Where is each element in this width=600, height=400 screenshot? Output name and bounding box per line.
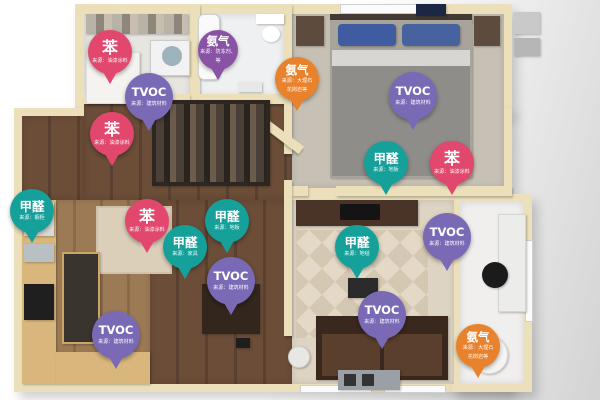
pin-tail [103, 72, 117, 84]
pin-bubble: 苯来源：油漆涂料 [430, 141, 474, 185]
pin-sub: 来源：地板 [373, 167, 399, 173]
pin-tail [109, 357, 123, 369]
pin-tail [350, 267, 364, 279]
pin-tail [224, 303, 238, 315]
pin-layer: 苯来源：油漆涂料氨气来源：防冻剂、等氨气来源：大理石花岗岩等TVOC来源：建筑材… [0, 0, 600, 400]
pin-sub: 来源：橱柜 [19, 215, 45, 221]
pin-bubble: TVOC来源：建筑材料 [92, 311, 140, 359]
pin-tail [445, 183, 459, 195]
pin-bubble: TVOC来源：建筑材料 [423, 213, 471, 261]
pin-label: 甲醛 [344, 237, 369, 250]
pin-label: 氨气 [207, 36, 230, 48]
pin-bubble: 甲醛来源：地板 [364, 141, 408, 185]
pin-sub: 来源：家具 [172, 251, 198, 257]
pin-tail [220, 241, 234, 253]
pin-label: TVOC [132, 87, 167, 99]
pin-tail [140, 241, 154, 253]
pin-bubble: 氨气来源：大理石花岗岩等 [456, 324, 500, 368]
pin-sub: 来源：地板 [214, 225, 240, 231]
pin-sub: 来源：油漆涂料 [129, 226, 165, 232]
pin-tail [178, 267, 192, 279]
pin-sub: 等 [215, 57, 220, 63]
pin-tail [375, 337, 389, 349]
pin-bubble: TVOC来源：建筑材料 [358, 291, 406, 339]
pin-bubble: 氨气来源：大理石花岗岩等 [275, 57, 319, 101]
pin-sub: 来源：防冻剂、 [200, 49, 236, 55]
pin-label: 甲醛 [214, 211, 239, 224]
pin-bubble: TVOC来源：建筑材料 [125, 73, 173, 121]
pin-label: 甲醛 [19, 201, 44, 214]
pin-label: 苯 [444, 151, 460, 167]
pin-sub: 来源：建筑材料 [131, 100, 167, 106]
pin-label: 甲醛 [172, 237, 197, 250]
pin-sub: 来源：建筑材料 [364, 318, 400, 324]
pin-tail [379, 183, 393, 195]
pin-sub: 来源：油漆涂料 [92, 57, 128, 63]
pin-label: 氨气 [467, 332, 490, 344]
pin-sub: 来源：油漆涂料 [434, 168, 470, 174]
pin-sub: 花岗岩等 [287, 86, 307, 92]
pin-label: TVOC [430, 227, 465, 239]
pin-label: TVOC [365, 305, 400, 317]
pin-label: 苯 [102, 40, 118, 56]
pin-sub: 来源：地毯 [344, 251, 370, 257]
pin-bubble: 苯来源：油漆涂料 [88, 30, 132, 74]
pin-label: 甲醛 [373, 153, 398, 166]
pin-sub: 来源：建筑材料 [98, 338, 134, 344]
pin-bubble: 甲醛来源：地板 [205, 199, 249, 243]
pin-tail [290, 99, 304, 111]
pin-label: 苯 [104, 122, 120, 138]
pin-tail [25, 231, 39, 243]
pin-bubble: 氨气来源：防冻剂、等 [198, 30, 238, 70]
pin-tail [471, 366, 485, 378]
floorplan-scene: 苯来源：油漆涂料氨气来源：防冻剂、等氨气来源：大理石花岗岩等TVOC来源：建筑材… [0, 0, 600, 400]
pin-tail [142, 119, 156, 131]
pin-sub: 来源：建筑材料 [395, 99, 431, 105]
pin-tail [406, 118, 420, 130]
pin-label: TVOC [396, 86, 431, 98]
pin-sub: 来源：油漆涂料 [94, 139, 130, 145]
pin-tail [211, 68, 225, 80]
pin-bubble: TVOC来源：建筑材料 [389, 72, 437, 120]
pin-bubble: 苯来源：油漆涂料 [90, 112, 134, 156]
pin-sub: 来源：大理石 [463, 345, 494, 351]
pin-bubble: TVOC来源：建筑材料 [207, 257, 255, 305]
pin-bubble: 甲醛来源：地毯 [335, 225, 379, 269]
pin-sub: 花岗岩等 [468, 353, 488, 359]
pin-bubble: 苯来源：油漆涂料 [125, 199, 169, 243]
pin-sub: 来源：大理石 [282, 78, 313, 84]
pin-bubble: 甲醛来源：家具 [163, 225, 207, 269]
pin-sub: 来源：建筑材料 [213, 284, 249, 290]
pin-bubble: 甲醛来源：橱柜 [10, 189, 54, 233]
pin-label: TVOC [214, 271, 249, 283]
pin-label: 苯 [139, 209, 155, 225]
pin-tail [440, 259, 454, 271]
pin-sub: 来源：建筑材料 [429, 240, 465, 246]
pin-tail [105, 154, 119, 166]
pin-label: TVOC [99, 325, 134, 337]
pin-label: 氨气 [286, 65, 309, 77]
